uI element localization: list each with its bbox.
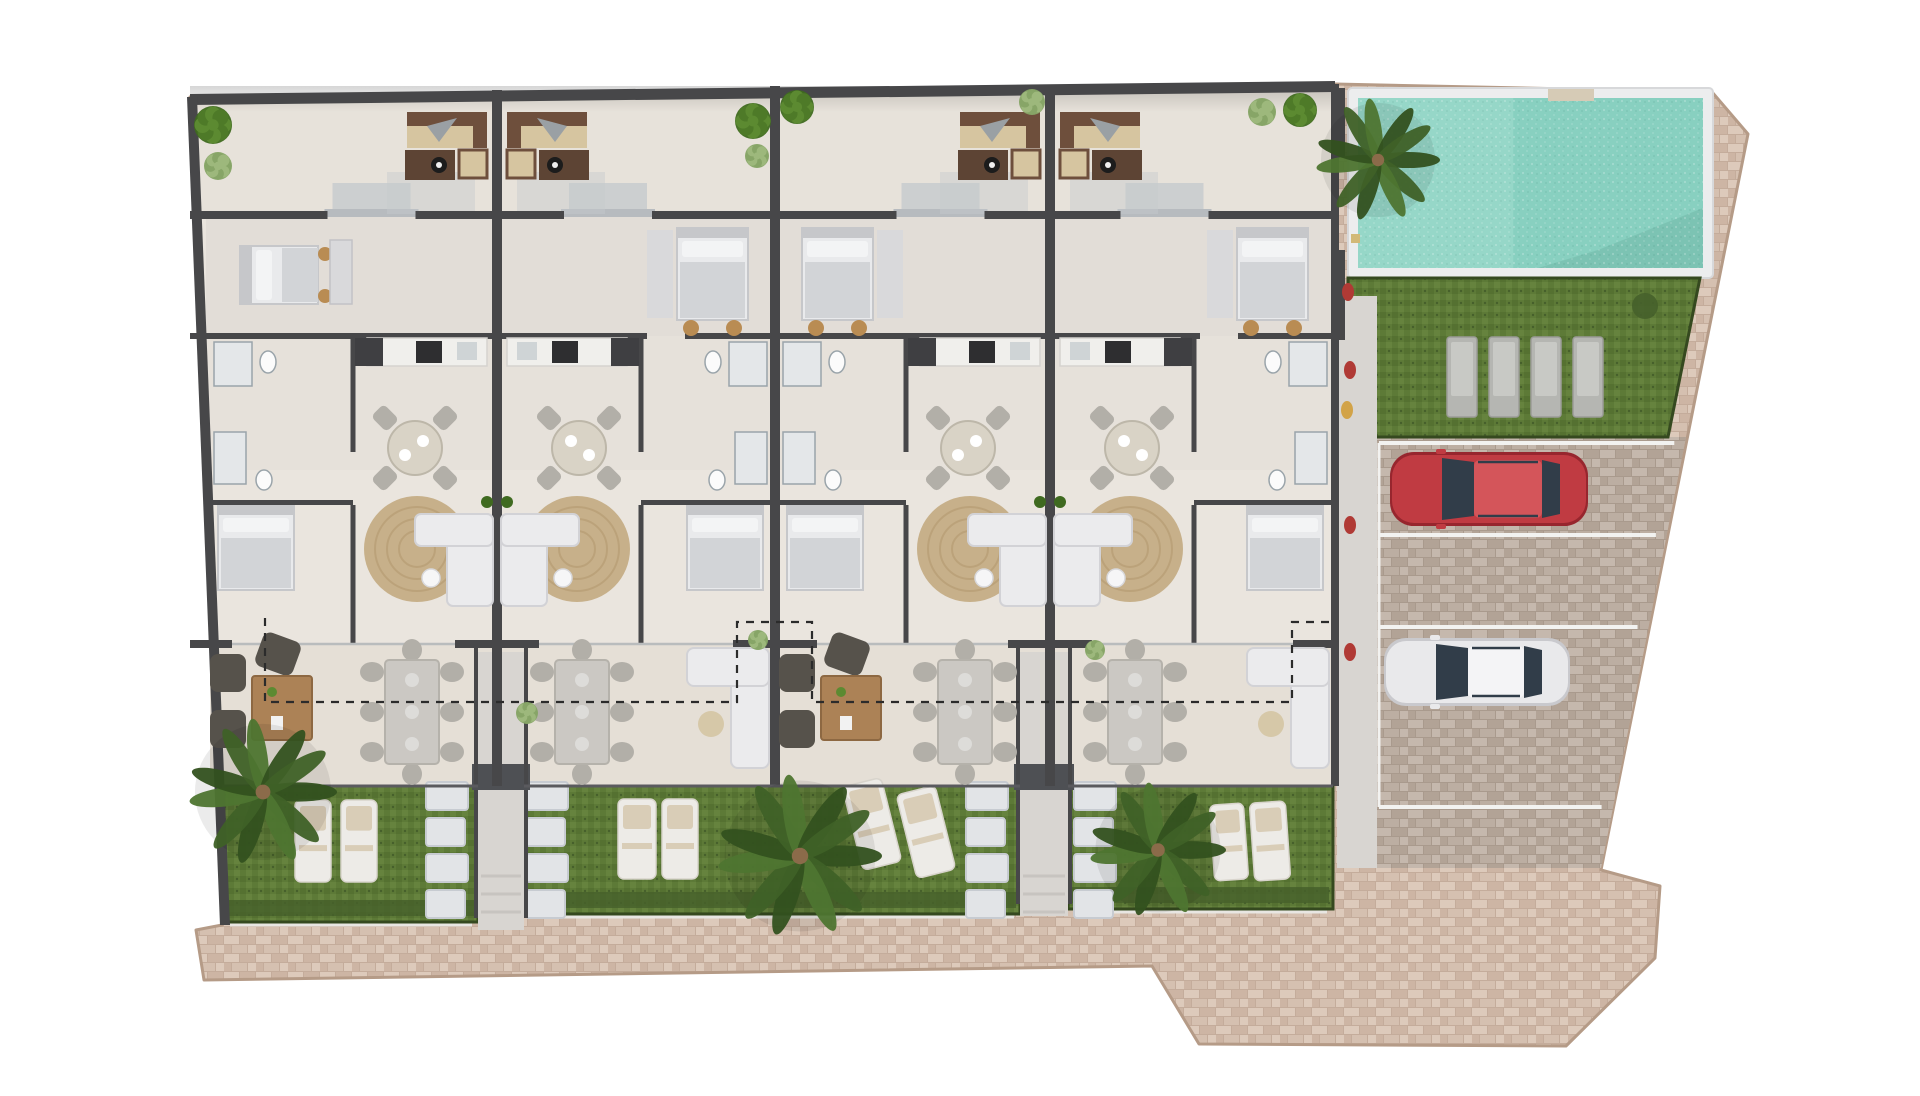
shower-2 — [735, 432, 767, 484]
patio-wall — [416, 211, 498, 219]
wood-coffee-table — [821, 676, 881, 740]
doorstep-item — [1344, 516, 1356, 534]
lounger-pillow — [346, 806, 372, 831]
terrace-chair — [610, 742, 634, 762]
bed-stool — [808, 320, 824, 336]
wardrobe — [647, 230, 673, 318]
south-wall — [775, 640, 817, 648]
terrace-chair — [1125, 639, 1145, 661]
doorstep-item — [1341, 401, 1353, 419]
table-setting — [405, 737, 419, 751]
white-sofa-chaise — [415, 514, 493, 546]
house-plant — [1054, 496, 1066, 508]
round-tree — [194, 106, 232, 144]
terrace-chair — [360, 742, 384, 762]
round-table — [552, 421, 606, 475]
bed-pillows — [1242, 241, 1303, 257]
car-roof — [1468, 646, 1524, 698]
house-plant — [481, 496, 493, 508]
kitchen-tall-unit — [611, 338, 639, 366]
tree-top — [755, 637, 761, 643]
pair-dividing-wall — [1045, 90, 1055, 786]
table-setting — [958, 737, 972, 751]
table-setting — [1128, 705, 1142, 719]
fire-table — [539, 150, 589, 180]
patio-wall — [652, 211, 775, 219]
bed-blanket — [282, 248, 318, 302]
stepping-stone — [1074, 890, 1113, 918]
plate — [399, 449, 411, 461]
terrace-chair — [955, 639, 975, 661]
tree-top — [753, 152, 760, 159]
terrace-side-wall — [1068, 644, 1072, 786]
sink — [1010, 342, 1030, 360]
garden-sun-lounger — [341, 800, 377, 882]
south-wall — [1293, 640, 1335, 648]
south-wall — [190, 640, 232, 648]
bed-2-pillows — [223, 518, 289, 532]
round-tree — [780, 90, 814, 124]
walkway-gate-shadow — [1014, 764, 1074, 790]
toilet-2 — [709, 470, 725, 490]
bedroom2-wall — [206, 500, 353, 505]
toilet — [1265, 351, 1281, 373]
plate — [1136, 449, 1148, 461]
pool-steps — [1548, 89, 1594, 101]
shower-2 — [783, 432, 815, 484]
red-car — [1390, 449, 1588, 529]
fire-bowl-center — [989, 162, 995, 168]
bed-stool — [683, 320, 699, 336]
outdoor-sofa-arm — [1026, 112, 1040, 148]
terrace-chair — [913, 742, 937, 762]
plate — [565, 435, 577, 447]
room-partition — [904, 505, 909, 644]
room-partition — [1192, 505, 1197, 644]
dark-armchair — [210, 654, 246, 692]
stepping-stone — [426, 890, 465, 918]
outdoor-chair — [1060, 150, 1088, 178]
pouf — [698, 711, 724, 737]
table-setting — [958, 705, 972, 719]
bed-2-blanket — [1250, 538, 1320, 588]
table-tray — [840, 716, 852, 730]
shower — [214, 342, 252, 386]
patio-lounge-set — [507, 112, 589, 180]
white-sofa-chaise — [968, 514, 1046, 546]
kitchen-tall-unit — [355, 338, 383, 366]
pool-lawn — [1348, 278, 1700, 437]
bed-stool — [1286, 320, 1302, 336]
south-wall — [1008, 640, 1050, 648]
bed-2-blanket — [790, 538, 860, 588]
second-bedroom — [218, 506, 294, 590]
bed-2-pillows — [692, 518, 758, 532]
plate — [583, 449, 595, 461]
dark-armchair — [779, 710, 815, 748]
terrace-chair — [402, 639, 422, 661]
white-sofa-chaise — [1054, 514, 1132, 546]
doorstep-item — [1344, 643, 1356, 661]
fire-bowl-center — [552, 162, 558, 168]
plate — [417, 435, 429, 447]
bed-stool — [1243, 320, 1259, 336]
bed-2-pillows — [1252, 518, 1318, 532]
side-table — [975, 569, 993, 587]
room-partition — [639, 336, 644, 452]
lounger-pillow — [623, 805, 651, 829]
round-tree — [735, 103, 771, 139]
outdoor-chair — [459, 150, 487, 178]
wardrobe — [1207, 230, 1233, 318]
stepping-stone — [966, 818, 1005, 846]
bedroom2-wall — [1194, 500, 1335, 505]
terrace-chair — [360, 662, 384, 682]
bed-pillows — [682, 241, 743, 257]
tree-top — [524, 710, 531, 717]
bed-pillows — [256, 250, 272, 300]
terrace-chair — [572, 639, 592, 661]
bed-2-headboard — [787, 506, 863, 515]
cooktop — [969, 341, 995, 363]
outdoor-sofa-arm — [473, 112, 487, 148]
table-plant — [267, 687, 277, 697]
tree-top — [1028, 98, 1036, 106]
light-bush — [516, 702, 538, 724]
round-tree — [1283, 93, 1317, 127]
room-partition — [904, 336, 909, 452]
car-windshield — [1436, 644, 1468, 700]
palm-trunk — [256, 785, 271, 800]
house-plant — [1034, 496, 1046, 508]
terrace-chair — [1163, 702, 1187, 722]
toilet — [260, 351, 276, 373]
patio-wall — [985, 211, 1051, 219]
terrace-chair — [1083, 742, 1107, 762]
terrace-chair — [1163, 662, 1187, 682]
bed-stool — [851, 320, 867, 336]
terrace-side-wall — [474, 644, 478, 786]
white-car — [1384, 635, 1570, 709]
sink — [517, 342, 537, 360]
bed-headboard — [240, 246, 252, 304]
room-partition — [639, 505, 644, 644]
terrace-chair — [993, 702, 1017, 722]
tree-top — [1295, 105, 1305, 115]
light-bush — [204, 152, 232, 180]
car-rear-window — [1542, 460, 1560, 518]
terrace-chair — [402, 763, 422, 785]
lounger-towel-band — [622, 843, 652, 849]
fire-bowl-center — [436, 162, 442, 168]
stepping-stone — [526, 818, 565, 846]
light-bush — [748, 630, 768, 650]
table-setting — [1128, 737, 1142, 751]
sink — [1070, 342, 1090, 360]
white-sofa-chaise — [501, 514, 579, 546]
car-rear-window — [1524, 646, 1542, 698]
terrace-chair — [530, 742, 554, 762]
residential-complex-ground-floor-site-plan — [0, 0, 1920, 1096]
tree-top — [1092, 647, 1098, 653]
kitchen — [908, 338, 1040, 366]
stepping-stone — [966, 890, 1005, 918]
pool-lounger-pad — [1577, 342, 1599, 396]
bedroom2-wall — [641, 500, 775, 505]
site-plan-stage — [0, 0, 1920, 1096]
table-setting — [575, 673, 589, 687]
light-bush — [1248, 98, 1276, 126]
bed-blanket — [1240, 262, 1305, 318]
corner-sofa-arm — [1247, 648, 1329, 686]
side-table — [554, 569, 572, 587]
terrace-mid-wall — [771, 644, 779, 786]
car-mirror-bottom — [1430, 704, 1440, 709]
terrace-chair — [530, 662, 554, 682]
palm-trunk — [1372, 154, 1384, 166]
plate — [970, 435, 982, 447]
toilet — [705, 351, 721, 373]
bed-pillows — [807, 241, 868, 257]
terrace-chair — [1083, 702, 1107, 722]
palm-trunk — [1151, 843, 1165, 857]
house-plant — [501, 496, 513, 508]
car-mirror-bottom — [1436, 524, 1446, 529]
shower — [783, 342, 821, 386]
corner-sofa-arm — [687, 648, 769, 686]
shower — [729, 342, 767, 386]
bed-headboard — [677, 228, 748, 238]
table-setting — [405, 705, 419, 719]
car-windshield — [1442, 458, 1474, 520]
side-table — [422, 569, 440, 587]
stepping-stone — [526, 890, 565, 918]
wardrobe — [330, 240, 352, 304]
plate — [952, 449, 964, 461]
table-setting — [958, 673, 972, 687]
light-bush — [1019, 89, 1045, 115]
toilet-2 — [256, 470, 272, 490]
terrace-chair — [440, 742, 464, 762]
fire-table — [958, 150, 1008, 180]
lounger-towel-band — [345, 845, 373, 851]
lounger-towel-band — [666, 843, 694, 849]
car-mirror-top — [1436, 449, 1446, 454]
outdoor-chair — [1012, 150, 1040, 178]
room-partition — [351, 505, 356, 644]
terrace-chair — [572, 763, 592, 785]
tree-top — [214, 162, 222, 170]
garden-walkway — [1014, 652, 1074, 916]
patio-lounge-set — [405, 112, 487, 180]
tree-top — [748, 116, 759, 127]
outdoor-sofa-arm — [507, 112, 521, 148]
bed-2-blanket — [690, 538, 760, 588]
sink — [457, 342, 477, 360]
light-bush — [745, 144, 769, 168]
round-table — [1105, 421, 1159, 475]
kitchen — [507, 338, 639, 366]
stepping-stone — [426, 854, 468, 882]
terrace-chair — [360, 702, 384, 722]
pool-lounger-pad — [1451, 342, 1473, 396]
toilet-2 — [1269, 470, 1285, 490]
round-table — [388, 421, 442, 475]
terrace-chair — [993, 742, 1017, 762]
toilet — [829, 351, 845, 373]
plate — [1118, 435, 1130, 447]
second-bedroom — [787, 506, 863, 590]
table-setting — [575, 737, 589, 751]
south-wall — [497, 640, 539, 648]
terrace-chair — [1163, 742, 1187, 762]
cooktop — [416, 341, 442, 363]
patio-wall — [1209, 211, 1336, 219]
car-mirror-top — [1430, 635, 1440, 640]
lounger-pillow — [1255, 807, 1283, 832]
side-table — [1107, 569, 1125, 587]
fire-table — [1092, 150, 1142, 180]
bedroom2-wall — [775, 500, 906, 505]
toilet-2 — [825, 470, 841, 490]
tree-top — [1258, 108, 1266, 116]
lounger-pillow — [1215, 809, 1241, 833]
outdoor-sofa-arm — [1060, 112, 1074, 148]
palm-trunk — [792, 848, 808, 864]
dark-armchair — [779, 654, 815, 692]
patio-wall — [190, 211, 328, 219]
bed-stool — [726, 320, 742, 336]
doorstep-item — [1344, 361, 1356, 379]
lawn-shrub — [1632, 293, 1658, 319]
master-bedroom — [240, 240, 352, 304]
bed-2-headboard — [1247, 506, 1323, 515]
patio-lounge-set — [1060, 112, 1142, 180]
bed-headboard — [802, 228, 873, 238]
kitchen-tall-unit — [1164, 338, 1192, 366]
garden-sun-lounger — [1249, 801, 1290, 881]
terrace-chair — [955, 763, 975, 785]
doorstep-item — [1342, 283, 1354, 301]
pool-ladder — [1351, 234, 1360, 243]
stepping-stone — [966, 854, 1008, 882]
terrace-chair — [913, 662, 937, 682]
garden-sun-lounger — [618, 799, 656, 879]
car-roof — [1474, 460, 1542, 518]
bed-blanket — [805, 262, 870, 318]
room-partition — [1192, 336, 1197, 452]
table-plant — [836, 687, 846, 697]
patio-wall — [775, 211, 897, 219]
terrace-chair — [440, 662, 464, 682]
terrace-chair — [1125, 763, 1145, 785]
garden-sun-lounger — [662, 799, 698, 879]
bed-2-headboard — [687, 506, 763, 515]
pool-lounger-pad — [1535, 342, 1557, 396]
fire-bowl-center — [1105, 162, 1111, 168]
terrace-chair — [440, 702, 464, 722]
side-walkway-floor — [1337, 296, 1377, 868]
kitchen — [355, 338, 487, 366]
cooktop — [552, 341, 578, 363]
shower — [1289, 342, 1327, 386]
terrace-chair — [1083, 662, 1107, 682]
room-partition — [351, 336, 356, 452]
second-bedroom — [1247, 506, 1323, 590]
terrace-side-wall — [1016, 644, 1020, 786]
table-setting — [575, 705, 589, 719]
cooktop — [1105, 341, 1131, 363]
kitchen-tall-unit — [908, 338, 936, 366]
shower-2 — [214, 432, 246, 484]
stepping-stone — [526, 854, 568, 882]
light-bush — [1085, 640, 1105, 660]
table-setting — [405, 673, 419, 687]
pouf — [1258, 711, 1284, 737]
table-setting — [1128, 673, 1142, 687]
bed-headboard — [1237, 228, 1308, 238]
terrace-chair — [913, 702, 937, 722]
lounger-pillow — [667, 805, 693, 829]
tree-top — [792, 102, 802, 112]
outdoor-chair — [507, 150, 535, 178]
stepping-stone — [426, 818, 465, 846]
pair-dividing-wall — [492, 90, 502, 786]
patio-wall — [497, 211, 564, 219]
pool-lounger-pad — [1493, 342, 1515, 396]
shower-2 — [1295, 432, 1327, 484]
terrace-chair — [610, 662, 634, 682]
bed-2-pillows — [792, 518, 858, 532]
second-bedroom — [687, 506, 763, 590]
bed-blanket — [680, 262, 745, 318]
patio-lounge-set — [958, 112, 1040, 180]
kitchen — [1060, 338, 1192, 366]
bed-2-blanket — [221, 538, 291, 588]
wardrobe — [877, 230, 903, 318]
tree-top — [207, 119, 218, 130]
fire-table — [405, 150, 455, 180]
terrace-chair — [610, 702, 634, 722]
bed-2-headboard — [218, 506, 294, 515]
patio-wall — [1050, 211, 1121, 219]
round-table — [941, 421, 995, 475]
terrace-chair — [993, 662, 1017, 682]
